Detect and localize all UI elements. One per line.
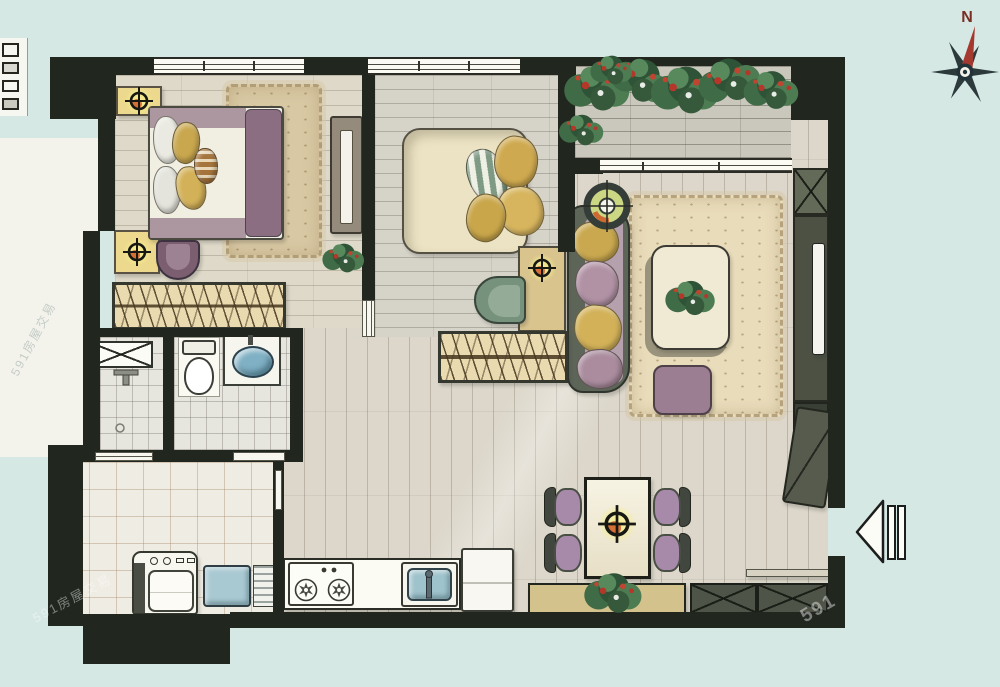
- shoe-cabinet: [690, 583, 757, 614]
- key-plan-sliver: [0, 38, 28, 116]
- entry-arrow-icon: [857, 501, 905, 562]
- wall-bottom: [230, 612, 830, 628]
- chair-seat: [653, 488, 681, 526]
- master-side-cabinet: [330, 116, 363, 234]
- site-notch-lower: [0, 231, 83, 457]
- wall-balcony-pier: [575, 158, 603, 174]
- toilet-bowl: [184, 357, 214, 395]
- window-mullion: [418, 61, 420, 71]
- second-bedroom-chair: [474, 276, 526, 324]
- wall-left-mid: [83, 231, 100, 457]
- balcony-rail: [575, 57, 793, 66]
- master-wardrobe-hangers: [112, 282, 286, 330]
- master-bed: [148, 106, 284, 240]
- dining-chair: [651, 486, 691, 528]
- chair-seat: [554, 488, 582, 526]
- bedroom-door-opening: [362, 300, 375, 337]
- second-bedroom-window: [368, 57, 520, 75]
- wall-block-bottomleft: [48, 445, 83, 626]
- chair-seat: [554, 534, 582, 572]
- balcony-deck: [575, 66, 791, 160]
- wall-corner-topleft: [50, 57, 116, 119]
- bed-footboard: [245, 109, 282, 237]
- pillow-bolster: [194, 148, 218, 184]
- washer-side-panel: [134, 563, 145, 613]
- window-mullion: [203, 61, 205, 71]
- washer-button: [187, 558, 195, 563]
- wall-bedroom-divider: [362, 75, 375, 337]
- laundry-sink: [203, 565, 251, 607]
- shoe-cabinet: [757, 583, 828, 614]
- chair-seat: [653, 534, 681, 572]
- site-notch-upper: [0, 138, 98, 231]
- compass-rose-icon: N: [931, 9, 999, 104]
- kitchen-sink-unit: [401, 562, 458, 607]
- chair-seat: [488, 285, 520, 317]
- toilet-door-opening: [233, 452, 285, 461]
- key-plan-cell: [2, 98, 19, 110]
- cabinet-panel: [340, 130, 353, 224]
- sideboard: [528, 583, 686, 614]
- wall-bathroom-right: [290, 328, 303, 461]
- refrigerator: [461, 548, 514, 612]
- washer-button: [176, 558, 184, 563]
- washer-door: [148, 570, 194, 612]
- vanity: [223, 335, 281, 386]
- dining-chair: [544, 486, 584, 528]
- door-mullion: [718, 162, 720, 172]
- balcony-sliding-door: [600, 158, 792, 173]
- window-mullion: [468, 61, 470, 71]
- washing-machine: [132, 551, 198, 615]
- toilet: [178, 337, 220, 397]
- wall-top: [116, 57, 154, 75]
- floor-plan-canvas: N 591房屋交易 591 591房屋交易: [0, 0, 1000, 687]
- dining-table: [584, 477, 651, 579]
- washer-knob: [150, 557, 158, 565]
- window-mullion: [253, 61, 255, 71]
- wall-top-pier: [304, 57, 368, 75]
- toilet-tank: [182, 340, 216, 355]
- wall-bathroom-divider: [163, 337, 174, 455]
- dining-chair: [544, 532, 584, 574]
- key-plan-cell: [2, 62, 19, 74]
- master-bedroom-window: [154, 57, 304, 75]
- wall-right-lower: [828, 556, 845, 628]
- wall-mass-bottomleft: [83, 614, 230, 664]
- wall-bathroom-top: [100, 328, 303, 337]
- second-wardrobe-hangers: [438, 331, 568, 383]
- ottoman: [653, 365, 712, 415]
- wall-right: [828, 60, 845, 508]
- washer-knob: [163, 557, 171, 565]
- key-plan-cell: [2, 43, 19, 57]
- entry-threshold: [746, 569, 830, 577]
- key-plan-cell: [2, 80, 19, 92]
- gas-stove: [288, 562, 354, 606]
- kitchen-pass-slit: [275, 470, 282, 510]
- armchair-seat: [166, 244, 190, 270]
- door-mullion: [642, 162, 644, 172]
- kitchen-sink-basin: [407, 568, 452, 601]
- wall-left-upper: [98, 119, 115, 231]
- tv-upper-cabinet: [793, 168, 829, 215]
- wash-basin: [232, 346, 274, 378]
- tv-screen: [812, 243, 825, 355]
- compass-north-label: N: [961, 9, 973, 26]
- bed-blanket-bottom: [150, 218, 246, 238]
- coffee-table: [651, 245, 730, 350]
- wall-bedroom2-right: [558, 57, 575, 252]
- bathroom-sliding-door: [95, 452, 153, 461]
- dining-chair: [651, 532, 691, 574]
